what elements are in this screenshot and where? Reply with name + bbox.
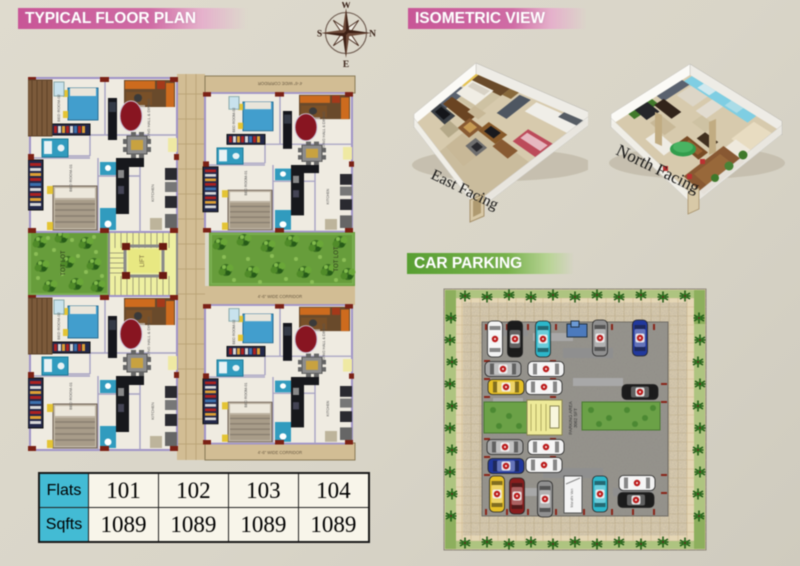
svg-text:TOT LOT: TOT LOT xyxy=(334,246,340,271)
svg-text:S: S xyxy=(317,30,322,40)
svg-text:TOT LOT: TOT LOT xyxy=(61,250,67,275)
svg-text:Maruthi Van: Maruthi Van xyxy=(570,489,574,508)
svg-text:4'-6" WIDE CORRIDOR: 4'-6" WIDE CORRIDOR xyxy=(258,450,302,455)
svg-text:LIFT: LIFT xyxy=(140,255,146,268)
svg-text:4'-6" WIDE CORRIDOR: 4'-6" WIDE CORRIDOR xyxy=(258,294,302,299)
svg-text:3062 SFT: 3062 SFT xyxy=(573,408,578,428)
svg-text:W: W xyxy=(341,2,351,11)
svg-text:N: N xyxy=(369,30,376,40)
svg-text:E: E xyxy=(343,60,349,68)
svg-text:4'-6" WIDE CORRIDOR: 4'-6" WIDE CORRIDOR xyxy=(258,81,302,86)
